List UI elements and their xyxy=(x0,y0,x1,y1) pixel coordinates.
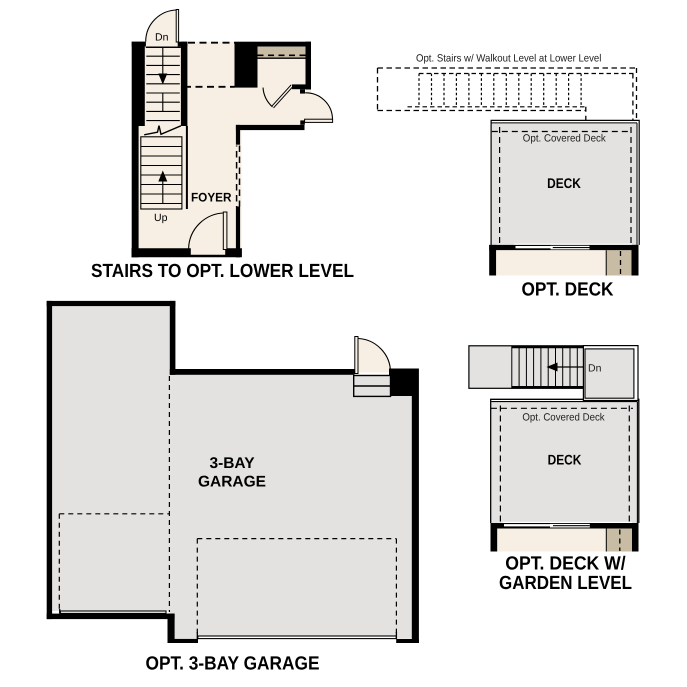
svg-text:STAIRS TO OPT. LOWER LEVEL: STAIRS TO OPT. LOWER LEVEL xyxy=(91,261,354,282)
svg-text:Dn: Dn xyxy=(588,363,602,375)
svg-text:OPT. DECK W/: OPT. DECK W/ xyxy=(505,554,626,575)
svg-text:GARAGE: GARAGE xyxy=(198,474,266,491)
svg-text:Dn: Dn xyxy=(155,32,169,44)
svg-text:DECK: DECK xyxy=(547,175,581,191)
svg-text:OPT. DECK: OPT. DECK xyxy=(522,280,614,301)
svg-text:FOYER: FOYER xyxy=(191,191,232,205)
svg-text:GARDEN LEVEL: GARDEN LEVEL xyxy=(499,573,632,594)
svg-text:3-BAY: 3-BAY xyxy=(209,455,255,472)
svg-text:Up: Up xyxy=(154,212,168,224)
svg-text:Opt. Covered Deck: Opt. Covered Deck xyxy=(523,133,607,145)
svg-text:OPT. 3-BAY GARAGE: OPT. 3-BAY GARAGE xyxy=(146,654,320,675)
svg-text:DECK: DECK xyxy=(548,452,582,468)
svg-text:Opt. Stairs w/ Walkout Level a: Opt. Stairs w/ Walkout Level at Lower Le… xyxy=(416,53,601,65)
svg-text:Opt. Covered Deck: Opt. Covered Deck xyxy=(522,412,605,424)
